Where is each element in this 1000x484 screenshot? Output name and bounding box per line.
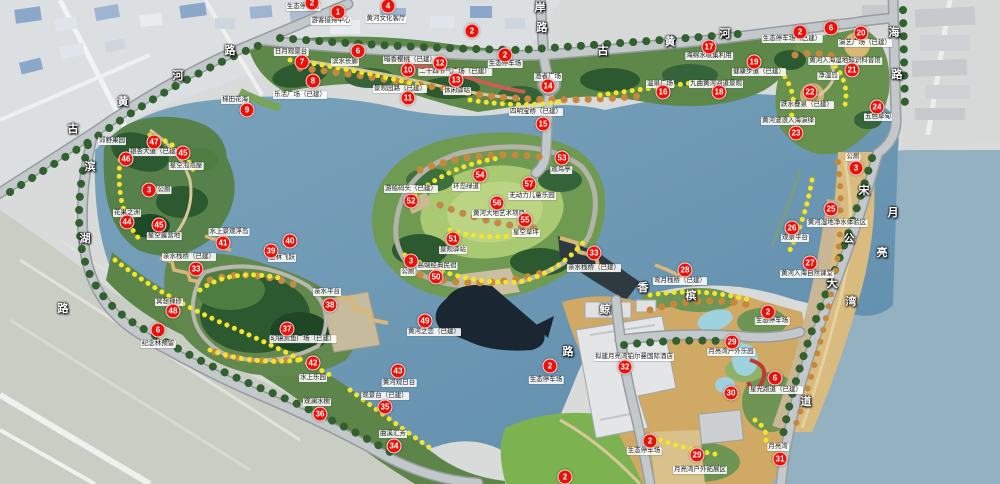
poi-marker-11[interactable]: 11 — [401, 91, 416, 106]
poi-marker-30[interactable]: 30 — [724, 386, 739, 401]
poi-marker-36[interactable]: 36 — [313, 407, 328, 422]
road-name-char: 月 — [888, 204, 899, 220]
poi-label: 纪念林预留 — [141, 340, 176, 348]
poi-marker-53[interactable]: 53 — [555, 151, 570, 166]
poi-label: 郊野果园 — [98, 137, 126, 145]
road-name-char: 路 — [563, 343, 574, 359]
poi-label: 星空草坪 — [512, 229, 540, 237]
poi-marker-7[interactable]: 7 — [295, 55, 310, 70]
poi-label: 拟建月亮湾铂尔曼国际酒店 — [594, 353, 674, 361]
poi-marker-42[interactable]: 42 — [306, 356, 321, 371]
road-name-char: 香 — [638, 279, 649, 295]
poi-marker-1[interactable]: 1 — [331, 5, 346, 20]
road-name-char: 宋 — [859, 182, 870, 198]
road-name-char: 海 — [889, 24, 900, 40]
poi-label: 幻镜赏鱼广场（已建） — [270, 335, 337, 343]
poi-label: 滨水长廊 — [331, 58, 359, 66]
poi-marker-6[interactable]: 6 — [151, 323, 166, 338]
poi-marker-40[interactable]: 40 — [283, 234, 298, 249]
poi-marker-32[interactable]: 32 — [618, 360, 633, 375]
poi-marker-12[interactable]: 12 — [433, 56, 448, 71]
poi-marker-29[interactable]: 29 — [690, 448, 705, 463]
poi-label: 健康步道（已建） — [732, 68, 786, 76]
poi-label: 休闲驿站 — [443, 87, 471, 95]
poi-label: 黄河观日台 — [382, 379, 417, 387]
poi-marker-46[interactable]: 46 — [119, 152, 134, 167]
poi-marker-22[interactable]: 22 — [803, 85, 818, 100]
poi-marker-29[interactable]: 29 — [725, 335, 740, 350]
poi-label: 弯月栈桥（已建） — [653, 277, 707, 285]
road-name-char: 槟 — [686, 287, 697, 303]
poi-label: 水上景观浮岛 — [209, 228, 250, 236]
poi-label: 景观驿站 — [439, 246, 467, 254]
poi-label: 无动力儿童乐园 — [508, 192, 556, 200]
road-name-char: 亮 — [877, 244, 888, 260]
poi-label: 观鸟亭 — [550, 166, 572, 174]
poi-marker-52[interactable]: 52 — [404, 194, 419, 209]
poi-marker-24[interactable]: 24 — [870, 100, 885, 115]
road-name-char: 路 — [225, 42, 236, 58]
poi-marker-6[interactable]: 6 — [824, 21, 839, 36]
poi-marker-44[interactable]: 44 — [120, 215, 135, 230]
poi-marker-2[interactable]: 2 — [465, 24, 480, 39]
poi-label: 黄河湿地净水体验区 — [807, 219, 868, 227]
poi-marker-3[interactable]: 3 — [142, 183, 157, 198]
poi-marker-2[interactable]: 2 — [543, 359, 558, 374]
poi-marker-33[interactable]: 33 — [587, 246, 602, 261]
poi-marker-14[interactable]: 14 — [541, 79, 556, 94]
road-name-char: 路 — [537, 19, 548, 35]
poi-label: 星空泡泡屋 — [169, 162, 204, 170]
poi-label: 亲水栈桥（已建） — [162, 253, 216, 261]
poi-marker-45[interactable]: 45 — [152, 218, 167, 233]
poi-marker-3[interactable]: 3 — [404, 254, 419, 269]
poi-marker-31[interactable]: 31 — [773, 452, 788, 467]
poi-marker-10[interactable]: 10 — [401, 63, 416, 78]
poi-marker-57[interactable]: 57 — [522, 177, 537, 192]
poi-marker-45[interactable]: 45 — [176, 146, 191, 161]
poi-label: 生态停车场 — [627, 447, 662, 455]
poi-label: 黄河入海自然课堂 — [780, 270, 834, 278]
poi-label: 亲水栈桥（已建） — [567, 264, 621, 272]
road-name-char: 古 — [598, 42, 609, 58]
road-name-char: 岸 — [535, 0, 546, 15]
poi-marker-41[interactable]: 41 — [216, 236, 231, 251]
poi-marker-19[interactable]: 19 — [747, 55, 762, 70]
poi-label: 亲水平台 — [313, 288, 341, 296]
poi-marker-27[interactable]: 27 — [803, 256, 818, 271]
poi-label: 公厕 — [401, 268, 416, 276]
poi-marker-4[interactable]: 4 — [381, 0, 396, 14]
poi-label: 水上乐园 — [299, 374, 327, 382]
poi-label: 游船码头（已建） — [384, 185, 438, 193]
road-name-char: 道 — [801, 393, 812, 409]
poi-label: 黄河波浪入海演绎 — [761, 117, 815, 125]
poi-marker-13[interactable]: 13 — [449, 73, 464, 88]
poi-marker-26[interactable]: 26 — [785, 221, 800, 236]
poi-marker-8[interactable]: 8 — [306, 74, 321, 89]
road-name-char: 河 — [173, 67, 184, 83]
poi-label: 月亮湾户外拓展区 — [673, 466, 727, 474]
road-name-char: 路 — [892, 66, 903, 82]
poi-label: 公厕 — [157, 186, 172, 194]
poi-marker-39[interactable]: 39 — [264, 244, 279, 259]
poi-marker-16[interactable]: 16 — [656, 85, 671, 100]
poi-marker-54[interactable]: 54 — [473, 168, 488, 183]
poi-label: 黄河入海湿地知识科普馆 — [808, 57, 882, 65]
road-name-char: 湾 — [846, 293, 857, 309]
poi-marker-21[interactable]: 21 — [845, 63, 860, 78]
road-name-char: 古 — [68, 120, 79, 136]
road-name-char: 湖 — [80, 230, 91, 246]
poi-marker-35[interactable]: 35 — [378, 400, 393, 415]
poi-marker-2[interactable]: 2 — [793, 25, 808, 40]
poi-label: 公厕 — [846, 153, 861, 161]
poi-marker-47[interactable]: 47 — [147, 135, 162, 150]
poi-label: 四明宝桥（已建） — [509, 108, 563, 116]
poi-marker-2[interactable]: 2 — [498, 48, 513, 63]
poi-marker-51[interactable]: 51 — [446, 232, 461, 247]
poi-label: 星光跑道（已建） — [749, 386, 803, 394]
poi-marker-50[interactable]: 50 — [429, 270, 444, 285]
poi-marker-2[interactable]: 2 — [558, 470, 573, 484]
road-name-char: 黄 — [118, 93, 129, 109]
poi-label: 黄河文化客厅 — [366, 15, 407, 23]
poi-marker-20[interactable]: 20 — [854, 26, 869, 41]
road-name-char: 路 — [58, 300, 69, 316]
poi-marker-15[interactable]: 15 — [536, 117, 551, 132]
poi-marker-23[interactable]: 23 — [789, 126, 804, 141]
poi-marker-6[interactable]: 6 — [768, 371, 783, 386]
poi-label: 游客接待中心 — [311, 17, 352, 25]
poi-label: 观景平台 — [781, 234, 809, 242]
poi-label: 跌水叠泉（已建） — [780, 101, 834, 109]
road-name-char: 鲸 — [600, 301, 611, 317]
poi-marker-43[interactable]: 43 — [391, 364, 406, 379]
poi-label: 星空露营地 — [147, 232, 182, 240]
poi-label: 乐活广场（已建） — [273, 91, 327, 99]
poi-label: 生态停车场（已建） — [762, 35, 823, 43]
poi-marker-38[interactable]: 38 — [323, 298, 338, 313]
poi-marker-3[interactable]: 3 — [849, 161, 864, 176]
poi-marker-49[interactable]: 49 — [418, 314, 433, 329]
poi-label: 演艺广场（已建） — [838, 39, 892, 47]
poi-label: 观澜水榭 — [303, 398, 331, 406]
poi-label: 环岛绿道 — [452, 183, 480, 191]
poi-marker-2[interactable]: 2 — [761, 305, 776, 320]
poi-marker-17[interactable]: 17 — [702, 40, 717, 55]
poi-label: 净湿岛 — [817, 72, 839, 80]
poi-marker-48[interactable]: 48 — [166, 304, 181, 319]
road-name-char: 黄 — [665, 33, 676, 49]
poi-marker-2[interactable]: 2 — [643, 434, 658, 449]
road-name-char: 公 — [844, 230, 855, 246]
poi-marker-6[interactable]: 6 — [351, 44, 366, 59]
poi-marker-37[interactable]: 37 — [280, 322, 295, 337]
poi-marker-55[interactable]: 55 — [518, 213, 533, 228]
poi-label: 生态停车场 — [529, 376, 564, 384]
poi-label: 景观园路（已建） — [373, 85, 427, 93]
road-name-char: 河 — [720, 25, 731, 41]
poi-marker-28[interactable]: 28 — [678, 263, 693, 278]
poi-marker-9[interactable]: 9 — [240, 103, 255, 118]
poi-marker-25[interactable]: 25 — [824, 202, 839, 217]
poi-marker-34[interactable]: 34 — [387, 439, 402, 454]
park-masterplan-map: 黄河路古滨湖路岸路古黄河海路宋公大道月亮湾香槟鲸路 生态停车场游客接待中心黄河文… — [0, 0, 1000, 484]
poi-label: 黄河之恋（已建） — [407, 328, 461, 336]
poi-label: 月亮湾 — [767, 443, 789, 451]
poi-marker-56[interactable]: 56 — [490, 196, 505, 211]
poi-marker-18[interactable]: 18 — [712, 85, 727, 100]
road-name-char: 滨 — [85, 158, 96, 174]
poi-label: 曲溪汇芳 — [379, 430, 407, 438]
poi-marker-33[interactable]: 33 — [189, 262, 204, 277]
